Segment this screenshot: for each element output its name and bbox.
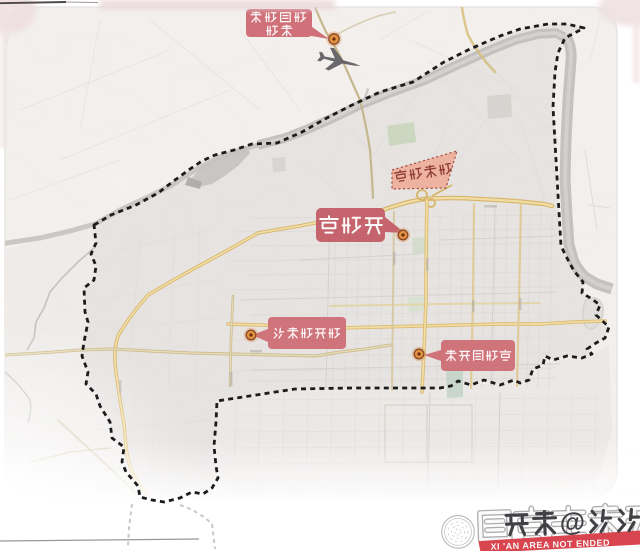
svg-text:@: @ [559,506,585,537]
